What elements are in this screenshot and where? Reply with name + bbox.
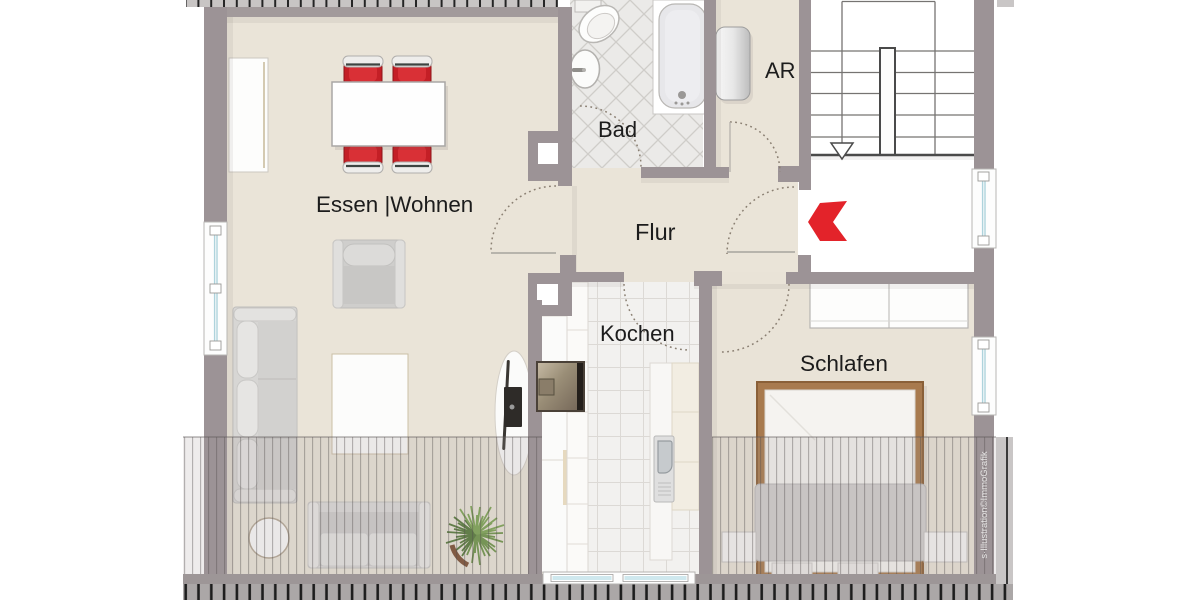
svg-text:Kochen: Kochen	[600, 321, 675, 346]
svg-text:Flur: Flur	[635, 219, 676, 245]
svg-text:AR: AR	[765, 58, 796, 83]
svg-text:Essen |Wohnen: Essen |Wohnen	[316, 192, 473, 217]
svg-text:s·Illustration©ImmoGrafik: s·Illustration©ImmoGrafik	[979, 451, 990, 559]
svg-text:Schlafen: Schlafen	[800, 351, 888, 376]
svg-text:Bad: Bad	[598, 117, 637, 142]
